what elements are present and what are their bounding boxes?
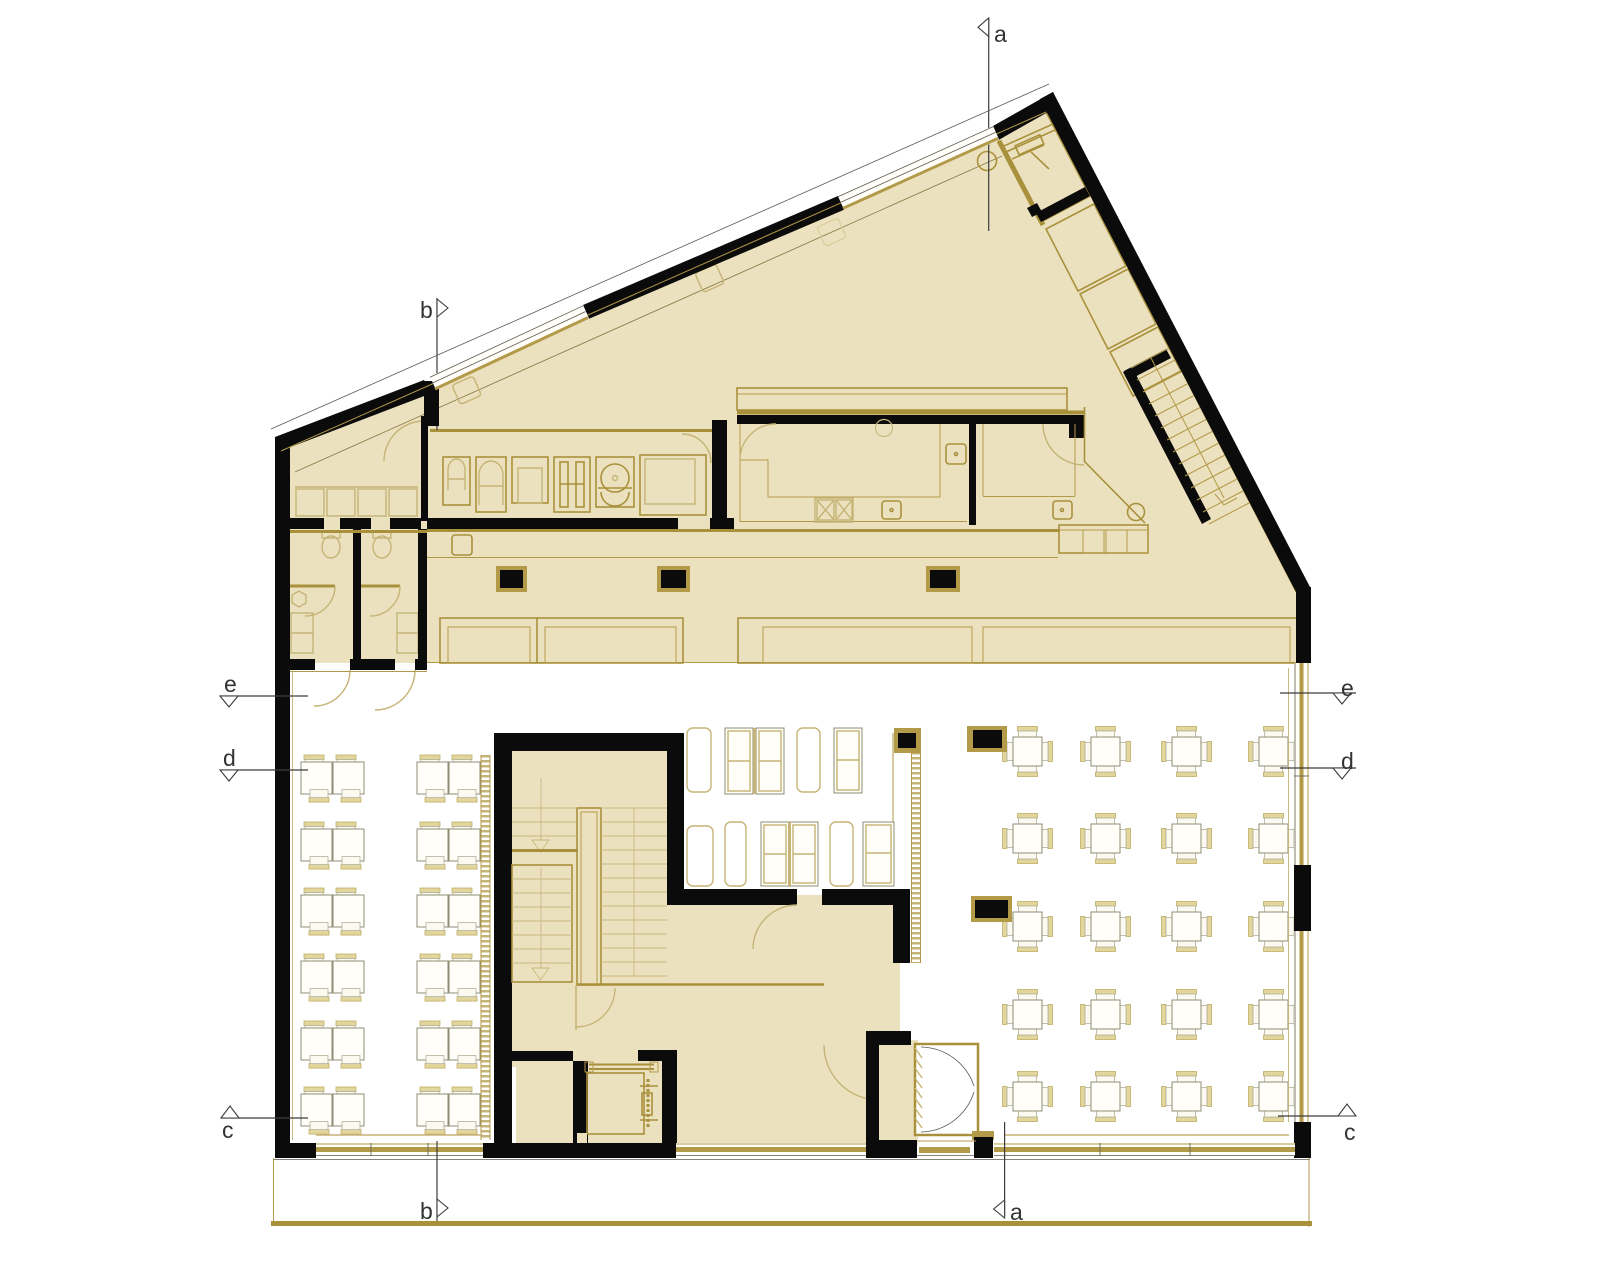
svg-text:a: a — [1010, 1199, 1023, 1225]
svg-text:c: c — [1344, 1119, 1356, 1145]
svg-text:b: b — [420, 1198, 433, 1224]
svg-text:d: d — [1341, 748, 1354, 774]
svg-text:b: b — [420, 297, 433, 323]
svg-text:e: e — [224, 671, 237, 697]
svg-text:d: d — [223, 745, 236, 771]
svg-text:a: a — [994, 21, 1007, 47]
svg-text:e: e — [1341, 675, 1354, 701]
svg-text:c: c — [222, 1117, 234, 1143]
